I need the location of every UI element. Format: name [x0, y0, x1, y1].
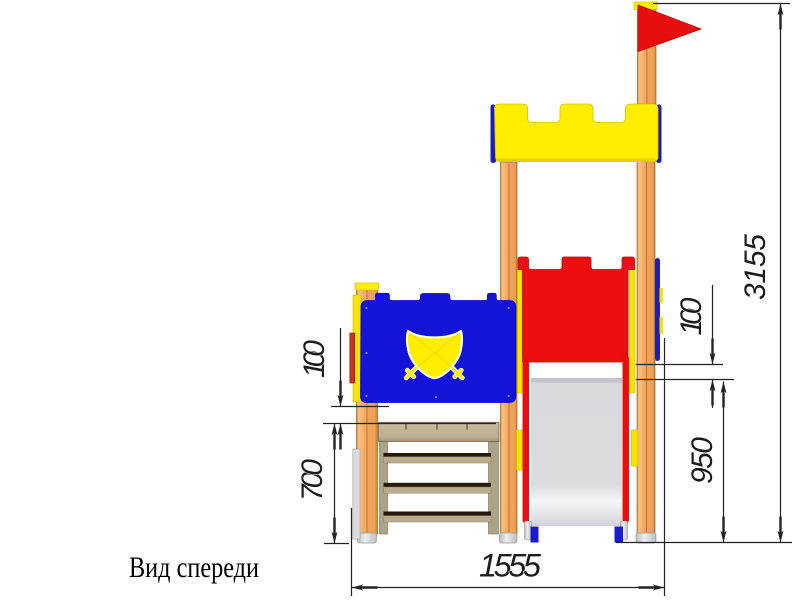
svg-text:Вид спереди: Вид спереди: [129, 551, 259, 584]
svg-text:1555: 1555: [479, 548, 542, 584]
svg-text:950: 950: [686, 437, 719, 484]
svg-text:100: 100: [298, 340, 331, 378]
svg-text:3155: 3155: [739, 234, 772, 300]
svg-text:100: 100: [675, 297, 708, 335]
svg-text:700: 700: [296, 459, 329, 501]
